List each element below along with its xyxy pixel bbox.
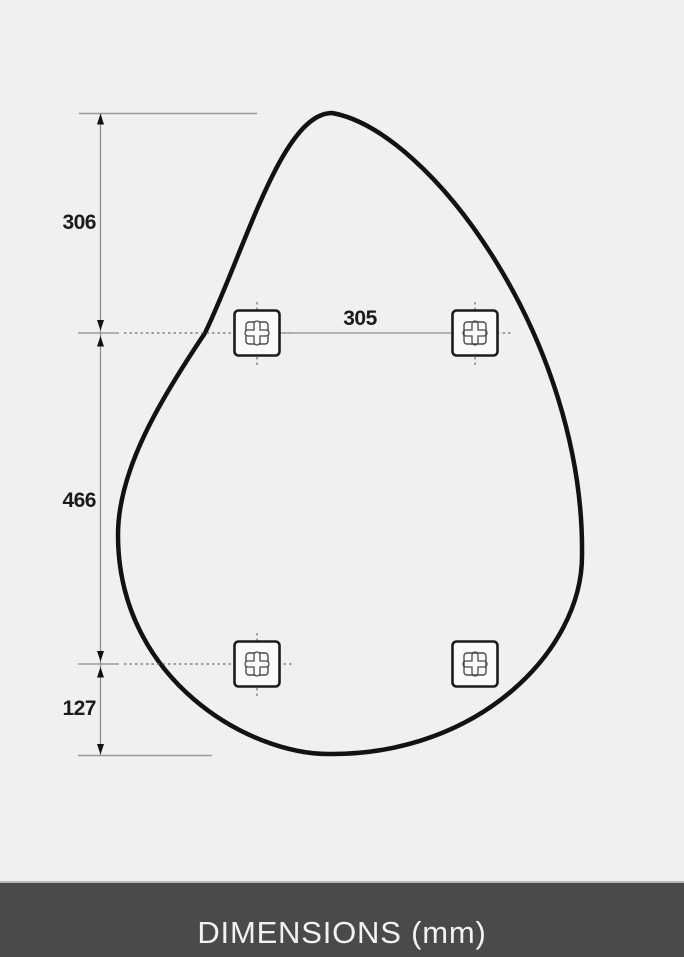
dashed-centre-lines — [124, 302, 513, 696]
mounting-bracket-bottom-left — [235, 642, 280, 687]
mirror-dimension-diagram: 306 305 466 127 — [0, 0, 684, 881]
arrow-up-upper-junction-icon — [97, 336, 104, 347]
arrow-down-lower-junction-icon — [97, 651, 104, 662]
mounting-brackets — [235, 311, 498, 687]
arrow-up-top-icon — [97, 114, 104, 125]
dimension-label-top-offset: 306 — [62, 211, 96, 234]
dimension-label-bottom-offset: 127 — [62, 697, 96, 720]
footer-bar: DIMENSIONS (mm) — [0, 881, 684, 957]
footer-title: DIMENSIONS (mm) — [197, 917, 486, 948]
dimension-label-hole-spacing: 305 — [343, 307, 377, 330]
mounting-bracket-bottom-right — [453, 642, 498, 687]
mirror-outline — [118, 113, 582, 754]
dimension-label-middle-span: 466 — [62, 489, 96, 512]
bracket-inner-square — [464, 322, 486, 344]
mounting-bracket-top-right — [453, 311, 498, 356]
bracket-inner-square — [464, 653, 486, 675]
arrow-up-lower-junction-icon — [97, 667, 104, 678]
arrow-down-upper-junction-icon — [97, 320, 104, 331]
dimension-drawing-page: 306 305 466 127 DIMENSIONS (mm) — [0, 0, 684, 957]
arrow-down-bottom-icon — [97, 744, 104, 755]
mounting-bracket-top-left — [235, 311, 280, 356]
